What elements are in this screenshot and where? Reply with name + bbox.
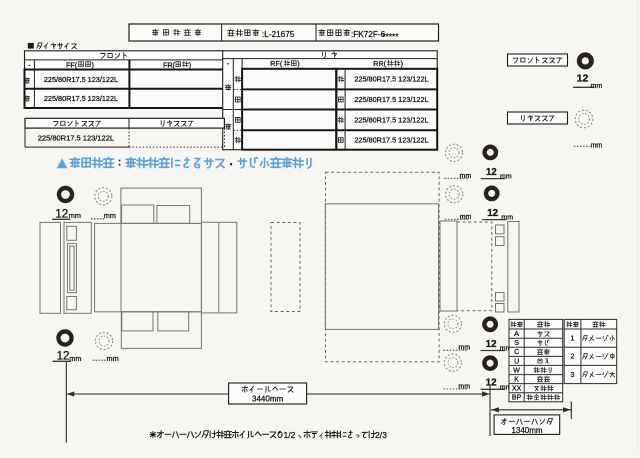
svg-text:2/3: 2/3: [375, 430, 387, 440]
svg-text:225/80R17.5 123/122L: 225/80R17.5 123/122L: [354, 136, 428, 145]
svg-text:mm: mm: [501, 215, 513, 222]
svg-text:3440mm: 3440mm: [252, 395, 283, 404]
svg-text:12: 12: [486, 339, 497, 350]
svg-text:mm: mm: [460, 173, 472, 180]
svg-text:FR(: FR(: [163, 60, 176, 69]
svg-text:): ): [189, 60, 191, 69]
svg-text:225/80R17.5 123/122L: 225/80R17.5 123/122L: [354, 115, 428, 124]
svg-text:): ): [297, 59, 299, 68]
svg-text:1340mm: 1340mm: [511, 426, 542, 435]
svg-text:BP: BP: [512, 395, 522, 402]
svg-text:12: 12: [577, 73, 589, 85]
svg-text:W: W: [513, 367, 520, 374]
svg-text:K: K: [514, 377, 519, 384]
svg-text:*****: *****: [383, 32, 400, 41]
svg-text:mm: mm: [69, 211, 81, 220]
svg-text:FF(: FF(: [66, 60, 78, 69]
svg-text:mm: mm: [104, 211, 116, 220]
svg-text:mm: mm: [591, 83, 603, 90]
svg-text:3: 3: [571, 372, 575, 379]
svg-text:mm: mm: [591, 142, 603, 149]
svg-text:225/80R17.5 123/122L: 225/80R17.5 123/122L: [44, 75, 118, 84]
svg-text:): ): [401, 59, 403, 68]
svg-text:mm: mm: [458, 345, 470, 352]
svg-text:mm: mm: [107, 354, 119, 363]
svg-text:RF(: RF(: [270, 59, 283, 68]
svg-text:1: 1: [571, 336, 575, 343]
svg-text::FK72F-6: :FK72F-6: [351, 30, 386, 39]
svg-text:C: C: [514, 349, 519, 356]
svg-text::L-21675: :L-21675: [262, 30, 295, 39]
svg-text:mm: mm: [460, 214, 472, 221]
svg-text:mm: mm: [500, 174, 512, 181]
svg-text:XX: XX: [512, 386, 522, 393]
svg-text:U: U: [514, 358, 519, 365]
svg-text:mm: mm: [458, 384, 470, 391]
svg-text:225/80R17.5 123/122L: 225/80R17.5 123/122L: [354, 95, 428, 104]
svg-text:225/80R17.5 123/122L: 225/80R17.5 123/122L: [38, 134, 114, 143]
svg-text:): ): [92, 60, 94, 69]
svg-text:A: A: [514, 331, 519, 338]
svg-text:225/80R17.5 123/122L: 225/80R17.5 123/122L: [44, 94, 118, 103]
svg-text:RR(: RR(: [373, 59, 386, 68]
svg-text:S: S: [514, 340, 519, 347]
svg-text:12: 12: [487, 208, 498, 219]
svg-text:12: 12: [486, 167, 497, 178]
svg-text:mm: mm: [69, 354, 81, 363]
svg-text:12: 12: [486, 378, 497, 389]
svg-text:1/2: 1/2: [284, 430, 296, 440]
svg-text:2: 2: [571, 354, 575, 361]
svg-text:225/80R17.5 123/122L: 225/80R17.5 123/122L: [354, 75, 428, 84]
